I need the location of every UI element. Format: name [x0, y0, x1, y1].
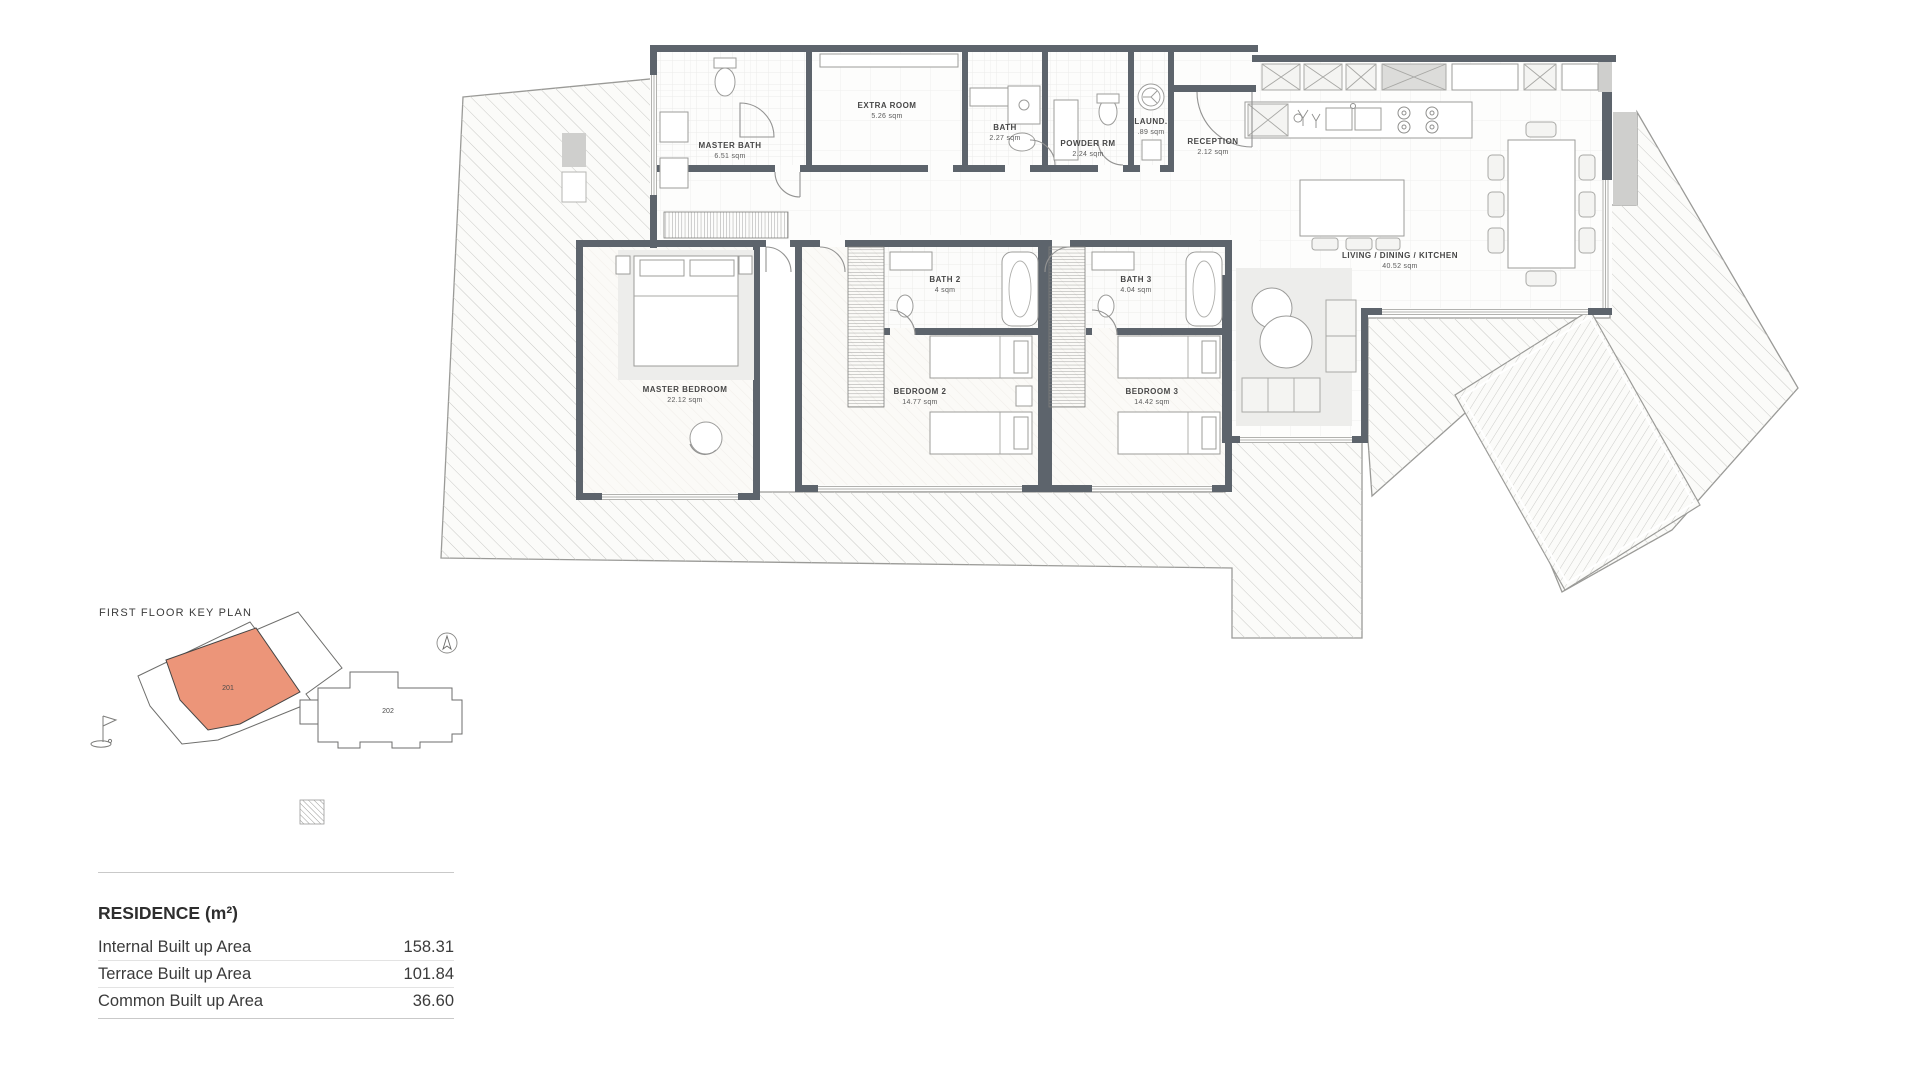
room-area: 40.52 sqm: [1382, 263, 1417, 270]
stool: [1312, 238, 1338, 250]
toilet-tank: [1097, 94, 1119, 103]
room-area: 2.24 sqm: [1072, 151, 1103, 158]
key-plan-title: FIRST FLOOR KEY PLAN: [99, 607, 252, 619]
dining-chair: [1579, 155, 1595, 180]
toilet-icon: [897, 295, 913, 317]
pillow: [640, 260, 684, 276]
sofa: [1242, 378, 1320, 412]
shower-tray: [1008, 86, 1040, 124]
row-label: Internal Built up Area: [98, 938, 251, 957]
stool: [1346, 238, 1372, 250]
row-value: 101.84: [404, 965, 454, 984]
nightstand: [616, 256, 630, 274]
lounge-chair: [690, 422, 722, 454]
nightstand: [739, 256, 752, 274]
room-label: RECEPTION: [1187, 137, 1238, 146]
dining-chair: [1488, 155, 1504, 180]
north-arrow-icon: [437, 633, 457, 653]
row-label: Terrace Built up Area: [98, 965, 251, 984]
room-label: MASTER BATH: [698, 141, 761, 150]
room-area: 4 sqm: [935, 287, 956, 294]
table-row: Internal Built up Area 158.31: [98, 934, 454, 960]
dining-table: [1508, 140, 1575, 268]
bathtub: [1002, 252, 1038, 326]
door-arc: [766, 247, 791, 272]
dining-chair: [1488, 228, 1504, 253]
residence-table-title: RESIDENCE (m²): [98, 903, 454, 924]
divider: [98, 872, 454, 873]
room-label: BATH 2: [929, 275, 960, 284]
pillow: [1014, 341, 1028, 373]
vanity-sink: [1092, 252, 1134, 270]
row-value: 36.60: [413, 992, 454, 1011]
dining-chair: [1526, 122, 1556, 137]
toilet-icon: [715, 68, 735, 96]
room-area: 4.04 sqm: [1120, 287, 1151, 294]
room-label: BEDROOM 3: [1126, 387, 1179, 396]
table-row: Terrace Built up Area 101.84: [98, 960, 454, 987]
residence-table-body: Internal Built up Area 158.31 Terrace Bu…: [98, 934, 454, 1019]
hamper: [1142, 140, 1161, 160]
dining-chair: [1579, 228, 1595, 253]
vanity-sink: [660, 112, 688, 142]
stool: [1376, 238, 1400, 250]
toilet-tank: [714, 58, 736, 68]
dining-chair: [1488, 192, 1504, 217]
bathtub: [1186, 252, 1222, 326]
room-label: BATH 3: [1120, 275, 1151, 284]
room-area: 6.51 sqm: [714, 153, 745, 160]
pillow: [1202, 341, 1216, 373]
room-label: LIVING / DINING / KITCHEN: [1342, 251, 1458, 260]
room-area: 14.42 sqm: [1134, 399, 1169, 406]
legend-hatch-swatch: [300, 800, 324, 824]
coffee-table: [1260, 316, 1312, 368]
room-label: MASTER BEDROOM: [643, 385, 728, 394]
keyplan-unit-201-label: 201: [222, 685, 234, 692]
dining-chair: [1526, 271, 1556, 286]
pillow: [1202, 417, 1216, 449]
room-area: 5.26 sqm: [871, 113, 902, 120]
golf-flag-icon: [91, 716, 116, 747]
pillow: [1014, 417, 1028, 449]
pillow: [690, 260, 734, 276]
living-area: [1236, 268, 1356, 426]
room-area: 22.12 sqm: [667, 397, 702, 404]
room-area: .89 sqm: [1138, 129, 1165, 136]
key-plan: FIRST FLOOR KEY PLAN 201 202: [91, 607, 462, 824]
row-value: 158.31: [404, 938, 454, 957]
table-row: Common Built up Area 36.60: [98, 987, 454, 1014]
nightstand: [1016, 386, 1032, 406]
kitchen-counter: [1245, 102, 1472, 138]
kitchen-cabinets: [1262, 64, 1598, 90]
sink-left: [1326, 108, 1352, 130]
room-area: 14.77 sqm: [902, 399, 937, 406]
vanity-sink: [970, 88, 1010, 106]
floor-plan-sheet: MASTER BATH 6.51 sqm EXTRA ROOM 5.26 sqm…: [0, 0, 1920, 1080]
room-label: BATH: [993, 123, 1017, 132]
keyplan-connector: [300, 700, 318, 724]
room-label: POWDER RM: [1060, 139, 1115, 148]
room-label: BEDROOM 2: [894, 387, 947, 396]
room-area: 2.12 sqm: [1197, 149, 1228, 156]
residence-summary: RESIDENCE (m²) Internal Built up Area 15…: [98, 872, 454, 1019]
sink-right: [1355, 108, 1381, 130]
vanity-sink: [660, 158, 688, 188]
room-label: LAUND.: [1134, 117, 1167, 126]
terrace-unit-block: [562, 133, 586, 167]
vanity-sink: [890, 252, 932, 270]
keyplan-unit-202-label: 202: [382, 708, 394, 715]
kitchen-island: [1300, 180, 1404, 236]
terrace-unit-block: [562, 172, 586, 202]
row-label: Common Built up Area: [98, 992, 263, 1011]
dining-chair: [1579, 192, 1595, 217]
room-label: EXTRA ROOM: [858, 101, 917, 110]
room-area: 2.27 sqm: [989, 135, 1020, 142]
